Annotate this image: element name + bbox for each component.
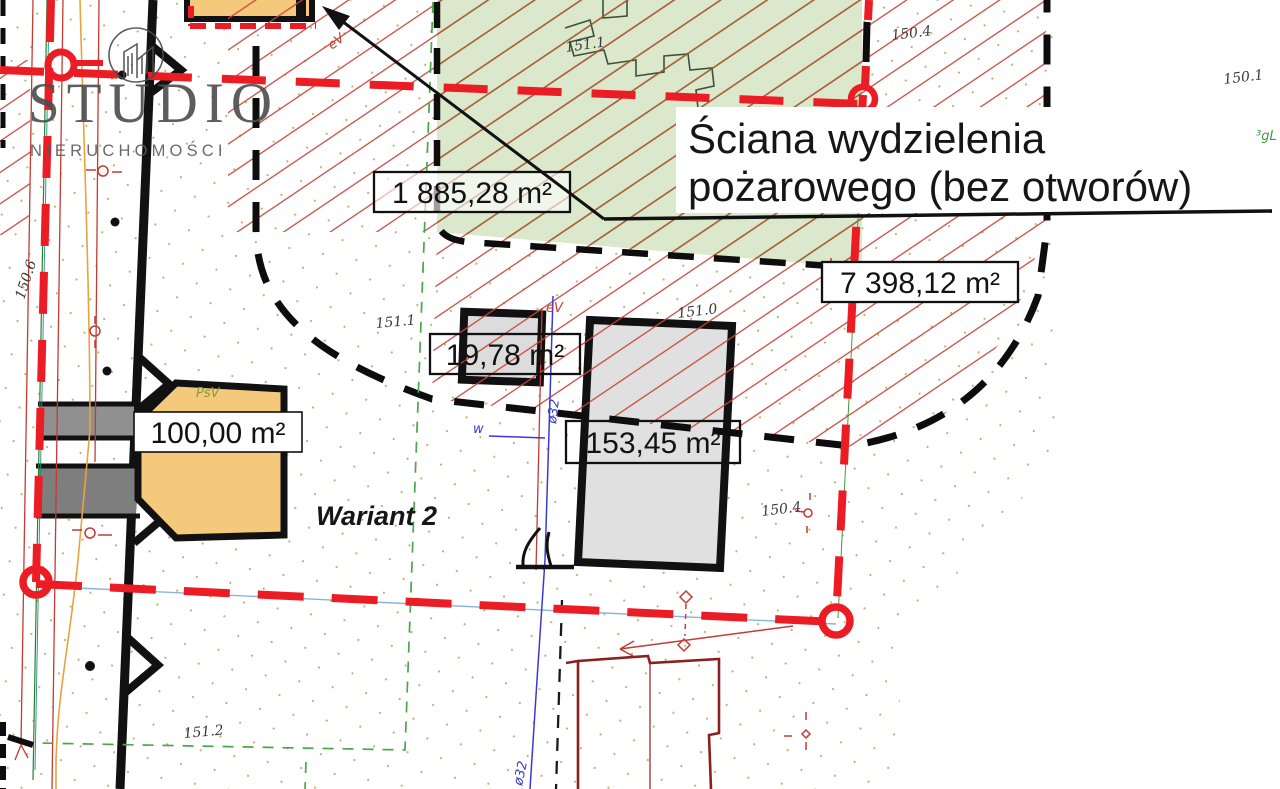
logo-title: STUDIO bbox=[28, 72, 279, 135]
power-line-mid-label: eV bbox=[546, 301, 564, 316]
area-value: 1 885,28 m² bbox=[392, 177, 552, 210]
land-use-label: PsV bbox=[196, 386, 221, 401]
annotation-line2: pożarowego (bez otworów) bbox=[688, 163, 1192, 210]
area-label-orange-building: 100,00 m² bbox=[134, 412, 302, 452]
area-value: 7 398,12 m² bbox=[840, 267, 1000, 300]
area-value: 100,00 m² bbox=[150, 417, 285, 450]
orange-building bbox=[138, 383, 284, 538]
area-label-small-building: 19,78 m² bbox=[430, 334, 580, 374]
area-value: 153,45 m² bbox=[585, 427, 720, 460]
area-label-parcel: 7 398,12 m² bbox=[822, 262, 1018, 302]
area-label-green-building: 1 885,28 m² bbox=[374, 172, 570, 212]
area-value: 19,78 m² bbox=[446, 339, 564, 372]
variant-label: Wariant 2 bbox=[316, 501, 437, 531]
pipe-size-upper: ø32 bbox=[545, 398, 563, 425]
water-line-label: w bbox=[473, 422, 484, 437]
annotation-line1: Ściana wydzielenia bbox=[688, 114, 1046, 162]
site-plan: w ø32 ø32 1 885,28 m² 7 398,12 m² 19,78 … bbox=[0, 0, 1280, 789]
logo-subtitle: NIERUCHOMOŚCI bbox=[30, 141, 227, 160]
gas-mark-label: ³gL bbox=[1256, 129, 1277, 144]
area-label-gray-building: 153,45 m² bbox=[566, 421, 740, 463]
